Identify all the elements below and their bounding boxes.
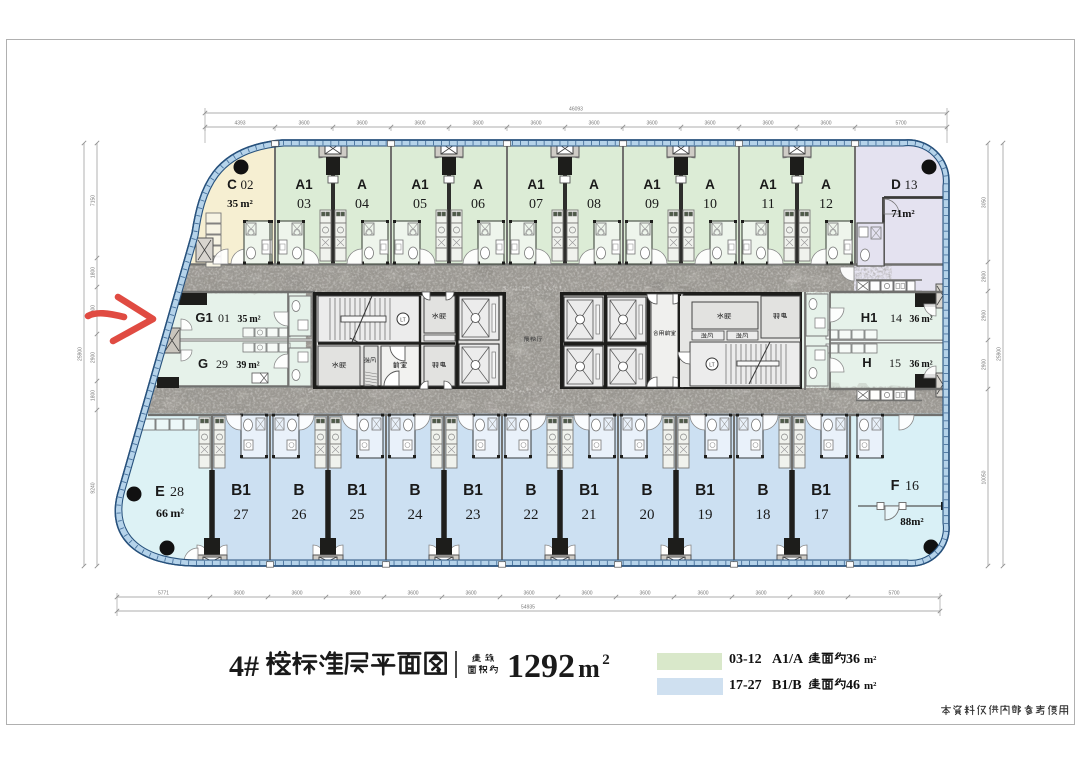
svg-text:m²: m² — [864, 654, 877, 666]
svg-text:3600: 3600 — [813, 591, 824, 597]
svg-text:35 m²: 35 m² — [237, 314, 260, 325]
svg-text:02: 02 — [241, 177, 254, 192]
svg-text:3600: 3600 — [291, 591, 302, 597]
svg-text:3600: 3600 — [639, 591, 650, 597]
svg-text:5700: 5700 — [895, 121, 906, 127]
svg-text:36 m²: 36 m² — [909, 359, 932, 370]
svg-text:A: A — [705, 177, 715, 192]
svg-text:E: E — [155, 484, 165, 500]
svg-text:46: 46 — [846, 678, 860, 693]
svg-text:B1: B1 — [463, 482, 483, 499]
svg-text:01: 01 — [218, 311, 230, 325]
svg-text:25900: 25900 — [997, 347, 1003, 361]
svg-text:A1: A1 — [295, 177, 313, 192]
svg-text:2: 2 — [602, 652, 610, 668]
svg-text:A1: A1 — [411, 177, 429, 192]
svg-text:06: 06 — [471, 197, 485, 212]
svg-text:2900: 2900 — [91, 352, 97, 363]
svg-text:m²: m² — [864, 680, 877, 692]
svg-text:08: 08 — [587, 197, 601, 212]
svg-text:3600: 3600 — [465, 591, 476, 597]
svg-text:B: B — [293, 482, 304, 499]
svg-text:7150: 7150 — [91, 195, 97, 206]
svg-text:25: 25 — [350, 507, 365, 523]
svg-text:4#: 4# — [229, 650, 259, 683]
svg-text:3600: 3600 — [523, 591, 534, 597]
svg-text:3600: 3600 — [697, 591, 708, 597]
svg-text:04: 04 — [355, 197, 369, 212]
svg-text:10050: 10050 — [982, 470, 988, 484]
svg-text:3600: 3600 — [530, 121, 541, 127]
svg-text:F: F — [891, 478, 900, 494]
svg-text:A1: A1 — [643, 177, 661, 192]
svg-text:03: 03 — [297, 197, 311, 212]
svg-text:3600: 3600 — [581, 591, 592, 597]
svg-text:18: 18 — [756, 507, 771, 523]
svg-text:4393: 4393 — [234, 121, 245, 127]
svg-text:1800: 1800 — [91, 267, 97, 278]
svg-text:A: A — [473, 177, 483, 192]
svg-text:m: m — [578, 654, 600, 683]
svg-text:3600: 3600 — [356, 121, 367, 127]
svg-text:A1/A: A1/A — [772, 652, 804, 667]
svg-text:39 m²: 39 m² — [236, 360, 259, 371]
svg-text:H: H — [862, 355, 871, 370]
svg-text:B1: B1 — [695, 482, 715, 499]
svg-text:3600: 3600 — [762, 121, 773, 127]
svg-text:A: A — [821, 177, 831, 192]
svg-text:C: C — [227, 177, 237, 192]
svg-text:26: 26 — [292, 507, 308, 523]
svg-text:2800: 2800 — [982, 271, 988, 282]
svg-text:88m²: 88m² — [900, 516, 924, 528]
svg-text:35 m²: 35 m² — [227, 198, 253, 210]
svg-text:03-12: 03-12 — [729, 652, 762, 667]
svg-text:3600: 3600 — [414, 121, 425, 127]
svg-text:3600: 3600 — [472, 121, 483, 127]
svg-text:15: 15 — [889, 356, 901, 370]
svg-text:A: A — [357, 177, 367, 192]
svg-text:3600: 3600 — [820, 121, 831, 127]
svg-text:3050: 3050 — [982, 197, 988, 208]
svg-text:09: 09 — [645, 197, 659, 212]
svg-text:5700: 5700 — [888, 591, 899, 597]
svg-text:1292: 1292 — [507, 648, 575, 685]
svg-text:3600: 3600 — [704, 121, 715, 127]
svg-text:B: B — [525, 482, 536, 499]
svg-text:3600: 3600 — [407, 591, 418, 597]
svg-text:24: 24 — [408, 507, 424, 523]
svg-text:21: 21 — [582, 507, 597, 523]
svg-text:2900: 2900 — [982, 310, 988, 321]
svg-text:3600: 3600 — [755, 591, 766, 597]
svg-text:9240: 9240 — [91, 482, 97, 493]
svg-text:12: 12 — [819, 197, 833, 212]
svg-text:36 m²: 36 m² — [909, 314, 932, 325]
svg-text:27: 27 — [234, 507, 250, 523]
svg-text:17: 17 — [814, 507, 830, 523]
svg-text:20: 20 — [640, 507, 655, 523]
svg-text:LT: LT — [709, 363, 714, 369]
svg-text:54935: 54935 — [521, 605, 535, 611]
svg-text:B: B — [757, 482, 768, 499]
svg-text:B1/B: B1/B — [772, 678, 802, 693]
svg-text:1800: 1800 — [91, 390, 97, 401]
svg-text:36: 36 — [846, 652, 860, 667]
svg-text:B: B — [641, 482, 652, 499]
svg-text:B1: B1 — [811, 482, 831, 499]
svg-text:2900: 2900 — [982, 359, 988, 370]
svg-text:14: 14 — [890, 311, 902, 325]
svg-text:3600: 3600 — [233, 591, 244, 597]
svg-text:A1: A1 — [527, 177, 545, 192]
svg-text:B1: B1 — [231, 482, 251, 499]
svg-text:G1: G1 — [195, 310, 212, 325]
svg-text:23: 23 — [466, 507, 481, 523]
svg-text:05: 05 — [413, 197, 427, 212]
svg-text:H1: H1 — [861, 310, 878, 325]
svg-text:B: B — [409, 482, 420, 499]
svg-text:A: A — [589, 177, 599, 192]
svg-text:B1: B1 — [579, 482, 599, 499]
svg-text:66 m²: 66 m² — [156, 506, 184, 520]
svg-text:3600: 3600 — [349, 591, 360, 597]
svg-text:29: 29 — [216, 357, 228, 371]
svg-text:16: 16 — [905, 479, 919, 494]
svg-text:07: 07 — [529, 197, 543, 212]
svg-text:19: 19 — [698, 507, 713, 523]
svg-text:D: D — [891, 177, 901, 192]
svg-text:3600: 3600 — [646, 121, 657, 127]
svg-text:28: 28 — [170, 485, 184, 500]
svg-text:13: 13 — [905, 177, 918, 192]
svg-text:3600: 3600 — [298, 121, 309, 127]
svg-text:22: 22 — [524, 507, 539, 523]
svg-text:11: 11 — [761, 197, 774, 212]
svg-text:25900: 25900 — [78, 347, 84, 361]
svg-text:LT: LT — [400, 318, 405, 324]
svg-text:46093: 46093 — [569, 107, 583, 113]
svg-text:B1: B1 — [347, 482, 367, 499]
svg-text:10: 10 — [703, 197, 717, 212]
svg-text:A1: A1 — [759, 177, 777, 192]
svg-text:5771: 5771 — [158, 591, 169, 597]
svg-text:71m²: 71m² — [891, 208, 915, 220]
svg-text:G: G — [198, 356, 208, 371]
svg-text:3600: 3600 — [588, 121, 599, 127]
svg-text:17-27: 17-27 — [729, 678, 762, 693]
